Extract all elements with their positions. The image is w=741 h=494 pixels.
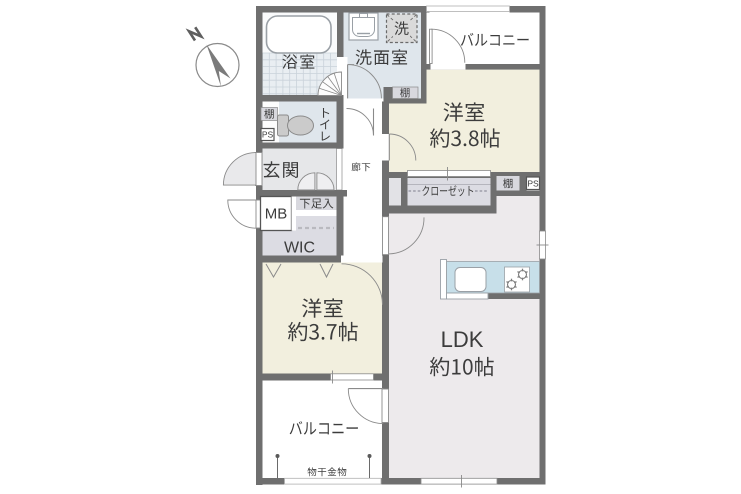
svg-text:PS: PS bbox=[527, 179, 539, 189]
svg-text:PS: PS bbox=[262, 130, 274, 140]
svg-text:LDK: LDK bbox=[441, 327, 484, 352]
svg-text:MB: MB bbox=[265, 206, 288, 223]
svg-text:WIC: WIC bbox=[284, 240, 315, 257]
